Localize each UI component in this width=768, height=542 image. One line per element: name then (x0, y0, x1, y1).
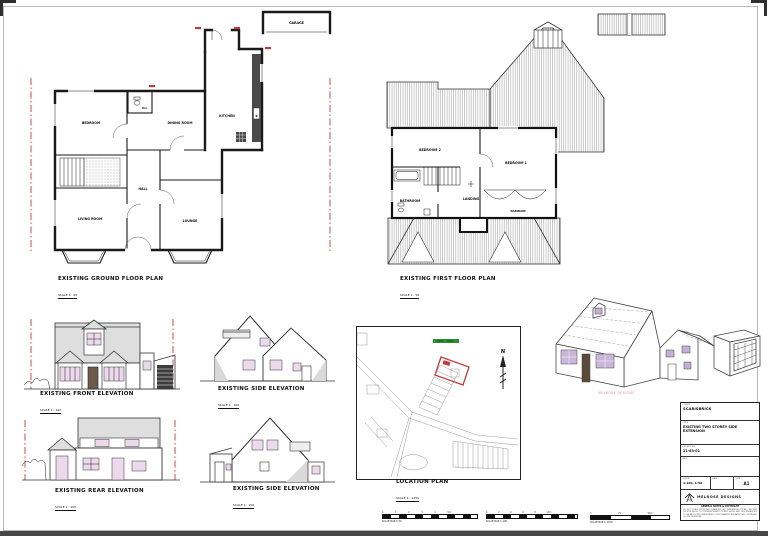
room-label-bedroom1: BEDROOM 1 (505, 161, 527, 165)
corner-mark-top-left-icon (0, 0, 16, 16)
north-arrow-icon: N (500, 349, 506, 389)
company-name: MELROSE DESIGNS (697, 495, 741, 499)
scale-bar-graphic (486, 514, 578, 519)
shrub-outline (24, 378, 50, 389)
scale-bar-1-1250: 0 25 50m SCALE BAR 1:1250 (590, 512, 670, 524)
rear-elevation (20, 406, 185, 490)
title-block-project: PROJECT No 21-63-01 (681, 445, 759, 457)
front-door (88, 367, 98, 389)
drawing-title: EXISTING TWO STOREY SIDE EXTENSION (683, 425, 757, 434)
scale-bar-caption: SCALE BAR 1:100 (486, 520, 578, 523)
company-logo: MELROSE DESIGNS (681, 490, 759, 505)
location-plan-map: N (357, 327, 518, 477)
room-label-dining: DINING ROOM (167, 121, 192, 125)
watermark-text: MELROSE DESIGNS (598, 391, 762, 395)
title-block-client: CLIENT SCARISBRICK (681, 403, 759, 421)
title-block-scale-row: SCALE 1:100, 1:50 DATE SIZE A1 (681, 477, 759, 490)
scale-value: 1:100, 1:50 (683, 482, 708, 486)
garage-roof (598, 14, 665, 35)
client-name: SCARISBRICK (683, 407, 757, 412)
room-label-landing: LANDING (463, 197, 480, 201)
date-cell: DATE (711, 477, 734, 489)
scale-bar-caption: SCALE BAR 1:1250 (590, 521, 670, 524)
scale-bar-graphic (590, 515, 670, 520)
wc-room: W.C. (128, 91, 152, 113)
kitchen-wing: KITCHEN (205, 49, 262, 150)
room-label-wardrobe: WARDROBE (510, 210, 526, 213)
room-label-wc: W.C. (142, 107, 148, 110)
north-label: N (501, 349, 505, 355)
side-elevation-2-caption: EXISTING SIDE ELEVATION SCALE 1 : 100 (233, 486, 393, 511)
location-plan: N (356, 326, 521, 480)
site-highlight-mark (433, 339, 459, 343)
ground-floor-plan: GARAGE KITCHEN W.C. (20, 4, 342, 272)
red-note-mark (265, 47, 271, 49)
room-label-bedroom: BEDROOM (82, 121, 100, 125)
scale-bar-1-50: 0 1 2 3 4 5m SCALE BAR 1:50 (382, 511, 478, 523)
plot-fill-mark (443, 360, 451, 366)
room-label-kitchen: KITCHEN (219, 114, 235, 118)
title-block-rev: REV (681, 457, 759, 477)
iso-front-door (582, 354, 590, 382)
rear-door (112, 458, 124, 480)
scale-cell: SCALE 1:100, 1:50 (681, 477, 711, 489)
title-block: CLIENT SCARISBRICK TITLE EXISTING TWO ST… (680, 402, 760, 521)
location-plan-caption: LOCATION PLAN SCALE 1 : 1250 (396, 479, 516, 504)
stairs (60, 158, 120, 186)
compass-house-logo-icon (684, 492, 695, 503)
paper-size: A1 (736, 481, 757, 486)
room-label-bathroom: BATHROOM (400, 199, 421, 203)
scale-bar-graphic (382, 514, 478, 519)
shrub-outline (22, 459, 46, 480)
map-streets (357, 333, 518, 477)
corner-mark-top-right-icon (751, 0, 767, 16)
room-label-lounge: LOUNGE (183, 219, 198, 223)
rear-elevation-caption: EXISTING REAR ELEVATION SCALE 1 : 100 (55, 488, 215, 513)
side-elevation-1-caption: EXISTING SIDE ELEVATION SCALE 1 : 100 (218, 386, 378, 411)
ground-floor-caption: EXISTING GROUND FLOOR PLAN SCALE 1 : 50 (58, 276, 258, 301)
scale-bar-caption: SCALE BAR 1:50 (382, 520, 478, 523)
red-note-mark (195, 27, 201, 29)
porch-walls (205, 30, 239, 52)
room-label-living: LIVING ROOM (78, 217, 102, 221)
red-note-mark (234, 27, 240, 29)
project-number: 21-63-01 (683, 449, 757, 453)
room-label-garage: GARAGE (289, 21, 304, 25)
title-block-title: TITLE EXISTING TWO STOREY SIDE EXTENSION (681, 421, 759, 445)
garage-left-face (714, 336, 730, 376)
bay-windows (62, 250, 212, 263)
front-elevation (22, 303, 182, 395)
side-elevation-1 (198, 308, 338, 388)
room-label-hall: HALL (138, 187, 147, 191)
plot-outline (435, 357, 469, 385)
side-elevation-2 (198, 412, 338, 488)
scale-bar-1-100: 0 2 4 6 8 10m SCALE BAR 1:100 (486, 511, 578, 523)
rooms-block (390, 126, 558, 232)
garage-outline: GARAGE (263, 12, 330, 33)
first-floor-plan: BEDROOM 2 BEDROOM 1 BATHROOM LANDING WAR… (380, 4, 680, 274)
size-cell: SIZE A1 (734, 477, 759, 489)
disclaimer-text: GENERAL NOTES & COPYRIGHT DO NOT SCALE F… (681, 505, 759, 520)
sheet-bottom-edge (0, 531, 768, 536)
isometric-view (548, 284, 762, 396)
red-note-mark (149, 85, 155, 87)
room-label-bedroom2: BEDROOM 2 (419, 148, 441, 152)
